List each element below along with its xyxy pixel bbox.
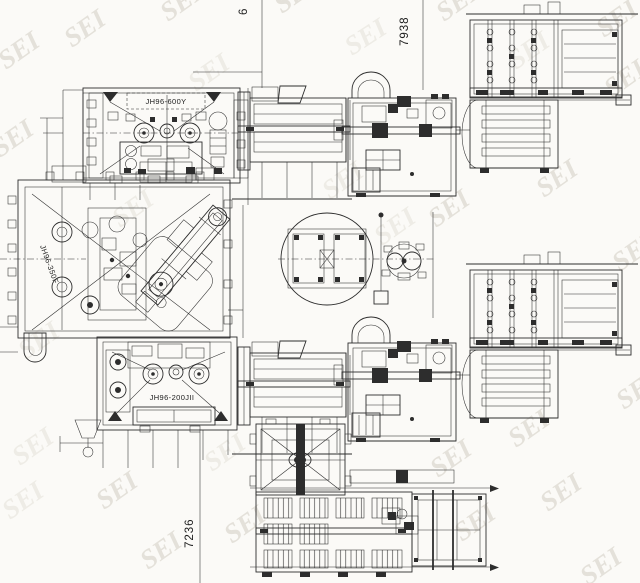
- watermark: SEI: [534, 467, 588, 517]
- watermark: SEI: [502, 403, 556, 453]
- watermark: SEI: [90, 465, 144, 515]
- mill-bottom: JH96-200JII: [97, 337, 237, 432]
- watermark: SEI: [0, 475, 50, 525]
- cooler-line-mid: [462, 252, 638, 423]
- watermark: SEI: [339, 11, 393, 61]
- mill-bottom-label: JH96-200JII: [150, 393, 195, 402]
- watermark: SEI: [268, 0, 322, 19]
- drum-machine-bottom: [334, 317, 460, 442]
- hopper: [250, 419, 351, 495]
- dimension-7236: 7236: [184, 432, 200, 583]
- watermark: SEI: [12, 315, 66, 365]
- drum-machine-top: [334, 72, 460, 197]
- watermark: SEI: [368, 201, 422, 251]
- watermark: SEI: [422, 183, 476, 233]
- layout-drawing: SEI SEI SEI SEI SEI SEI SEI SEI SEI SEI …: [0, 0, 640, 583]
- watermark: SEI: [198, 427, 252, 477]
- watermark: SEI: [106, 183, 160, 233]
- watermark: SEI: [0, 113, 40, 163]
- watermark: SEI: [574, 541, 628, 583]
- watermark: SEI: [430, 0, 484, 27]
- dimension-label: 7236: [184, 518, 196, 548]
- watermark: SEI: [606, 227, 640, 277]
- watermark: SEI: [448, 497, 502, 547]
- blueprint-page: SEI SEI SEI SEI SEI SEI SEI SEI SEI SEI …: [0, 0, 640, 583]
- mill-top: JH96-600Y: [83, 88, 248, 183]
- watermark: SEI: [182, 47, 236, 97]
- watermark-layer: SEI SEI SEI SEI SEI SEI SEI SEI SEI SEI …: [0, 0, 640, 583]
- watermark: SEI: [0, 25, 46, 75]
- dimension-7938: 7938: [399, 0, 423, 90]
- watermark: SEI: [610, 365, 640, 415]
- watermark: SEI: [154, 0, 208, 27]
- dimension-label-partial: 6: [238, 8, 250, 15]
- watermark: SEI: [530, 153, 584, 203]
- watermark: SEI: [134, 525, 188, 575]
- watermark: SEI: [502, 25, 556, 75]
- mill-top-label: JH96-600Y: [145, 97, 186, 106]
- watermark: SEI: [6, 421, 60, 471]
- watermark: SEI: [58, 3, 112, 53]
- dimension-label: 7938: [399, 16, 411, 46]
